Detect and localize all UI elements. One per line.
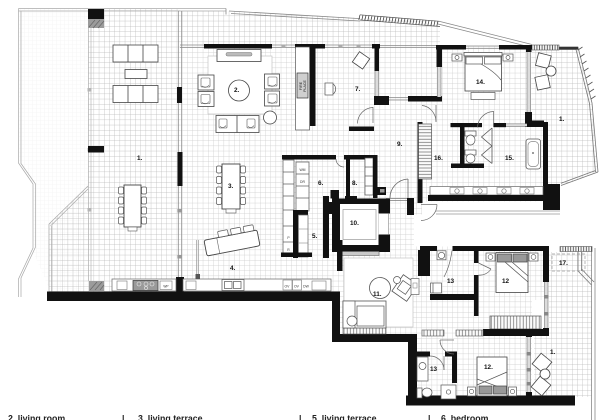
svg-text:8.: 8.	[352, 180, 358, 187]
svg-text:5.: 5.	[312, 233, 318, 240]
svg-text:|: |	[122, 414, 124, 420]
svg-text:15.: 15.	[505, 155, 514, 162]
svg-text:3.: 3.	[228, 183, 234, 190]
svg-text:OV: OV	[285, 285, 291, 289]
svg-text:16.: 16.	[434, 155, 443, 162]
svg-text:1.: 1.	[550, 349, 556, 356]
svg-text:12: 12	[502, 278, 510, 285]
svg-text:DW: DW	[303, 285, 309, 289]
svg-text:1.: 1.	[137, 155, 143, 162]
svg-text:17.: 17.	[559, 260, 568, 267]
svg-text:14.: 14.	[476, 79, 485, 86]
svg-text:11.: 11.	[373, 291, 382, 298]
svg-text:9.: 9.	[397, 141, 403, 148]
svg-text:12.: 12.	[484, 364, 493, 371]
svg-text:WM: WM	[299, 168, 305, 172]
svg-text:|: |	[299, 414, 301, 420]
svg-text:3. living terrace: 3. living terrace	[138, 414, 203, 420]
svg-text:2. living room: 2. living room	[8, 414, 65, 420]
svg-text:6.: 6.	[318, 180, 324, 187]
svg-text:10.: 10.	[350, 220, 359, 227]
svg-text:2.: 2.	[234, 87, 240, 94]
svg-text:13: 13	[447, 278, 455, 285]
svg-text:1.: 1.	[559, 116, 565, 123]
svg-text:4.: 4.	[230, 265, 236, 272]
svg-text:7.: 7.	[355, 86, 361, 93]
svg-text:PLACE: PLACE	[303, 80, 307, 92]
svg-text:DR: DR	[300, 180, 305, 184]
svg-text:5. living terrace: 5. living terrace	[312, 414, 377, 420]
svg-text:6. bedroom: 6. bedroom	[441, 414, 489, 420]
svg-text:WP: WP	[163, 285, 168, 289]
svg-text:|: |	[428, 414, 430, 420]
svg-text:OV: OV	[294, 285, 300, 289]
svg-text:13: 13	[430, 366, 438, 373]
